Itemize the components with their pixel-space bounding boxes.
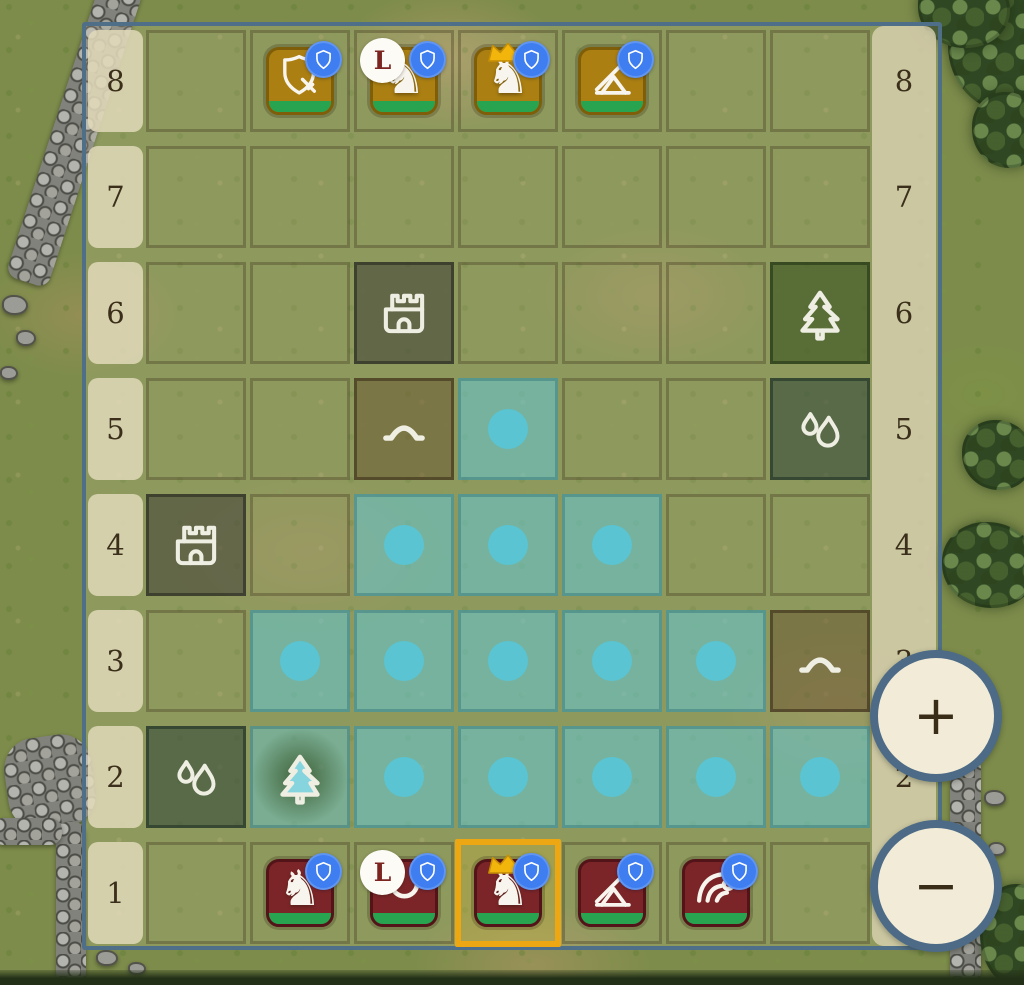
piece-king-gold[interactable]: ♞ <box>474 47 542 115</box>
move-dot <box>384 757 424 797</box>
shield-badge-icon <box>617 41 654 78</box>
move-dot <box>592 525 632 565</box>
board-cell[interactable] <box>562 494 662 596</box>
board-cell[interactable] <box>458 610 558 712</box>
board-cell[interactable] <box>458 378 558 480</box>
shield-badge-icon <box>513 853 550 890</box>
health-bar <box>685 913 747 924</box>
row-label-left: 8 <box>88 30 143 132</box>
health-bar <box>581 913 643 924</box>
board-cell[interactable] <box>354 146 454 248</box>
move-dot <box>488 525 528 565</box>
piece-catapult-red[interactable] <box>578 859 646 927</box>
piece-shield-guard-gold[interactable] <box>266 47 334 115</box>
bush <box>972 92 1024 168</box>
board-cell[interactable] <box>666 610 766 712</box>
board-cell[interactable] <box>146 494 246 596</box>
board-cell[interactable] <box>146 262 246 364</box>
board-cell[interactable] <box>666 262 766 364</box>
move-dot <box>696 757 736 797</box>
game-screen: 8765432187654321♞L♞♞L♞ + − <box>0 0 1024 985</box>
shield-badge-icon <box>409 853 446 890</box>
board-cell[interactable] <box>562 610 662 712</box>
board-cell[interactable] <box>770 494 870 596</box>
board-cell[interactable] <box>666 146 766 248</box>
board-cell[interactable] <box>770 842 870 944</box>
row-label-left: 7 <box>88 146 143 248</box>
row-label-left: 5 <box>88 378 143 480</box>
board-cell[interactable] <box>250 378 350 480</box>
board-cell[interactable] <box>666 378 766 480</box>
board-cell[interactable] <box>250 494 350 596</box>
board-cell[interactable] <box>250 262 350 364</box>
health-bar <box>373 101 435 112</box>
board-cell[interactable] <box>146 30 246 132</box>
board-cell[interactable] <box>354 610 454 712</box>
health-bar <box>477 913 539 924</box>
row-label-left: 2 <box>88 726 143 828</box>
zoom-in-button[interactable]: + <box>870 650 1002 782</box>
move-dot <box>384 525 424 565</box>
shield-badge-icon <box>305 853 342 890</box>
board-cell[interactable] <box>458 494 558 596</box>
board-cell[interactable] <box>458 262 558 364</box>
health-bar <box>477 101 539 112</box>
forest-icon <box>253 729 347 825</box>
board-cell[interactable] <box>562 262 662 364</box>
health-bar <box>581 101 643 112</box>
board-cell[interactable] <box>250 610 350 712</box>
board-cell[interactable] <box>770 378 870 480</box>
board-cell[interactable] <box>770 610 870 712</box>
move-dot <box>488 641 528 681</box>
water-icon <box>149 729 243 825</box>
row-label-left: 4 <box>88 494 143 596</box>
piece-knight-gold[interactable]: ♞L <box>370 47 438 115</box>
bush <box>962 420 1024 490</box>
row-label-right: 7 <box>872 180 936 214</box>
board-cell[interactable] <box>146 378 246 480</box>
board-cell[interactable] <box>250 726 350 828</box>
board-cell[interactable] <box>354 262 454 364</box>
piece-lancer-red[interactable]: L <box>370 859 438 927</box>
rock <box>96 950 118 966</box>
stone-wall <box>0 818 62 845</box>
move-dot <box>488 409 528 449</box>
zoom-out-label: − <box>913 859 958 913</box>
castle-icon <box>149 497 243 593</box>
shield-badge-icon <box>721 853 758 890</box>
board-cell[interactable] <box>146 146 246 248</box>
board-cell[interactable] <box>354 726 454 828</box>
board-cell[interactable] <box>354 378 454 480</box>
board-cell[interactable] <box>562 726 662 828</box>
row-label-left: 1 <box>88 842 143 944</box>
board-cell[interactable] <box>458 146 558 248</box>
move-dot <box>800 757 840 797</box>
row-label-right: 6 <box>872 296 936 330</box>
rock <box>984 790 1006 806</box>
board-cell[interactable] <box>562 378 662 480</box>
health-bar <box>269 913 331 924</box>
board-cell[interactable] <box>666 494 766 596</box>
board-cell[interactable] <box>666 726 766 828</box>
move-dot <box>592 757 632 797</box>
health-bar <box>373 913 435 924</box>
zoom-out-button[interactable]: − <box>870 820 1002 952</box>
forest-icon <box>773 265 867 361</box>
row-labels-right <box>872 26 936 946</box>
board-cell[interactable] <box>146 842 246 944</box>
move-dot <box>384 641 424 681</box>
zoom-in-label: + <box>913 689 958 743</box>
shield-badge-icon <box>513 41 550 78</box>
hill-icon <box>773 613 867 709</box>
board-cell[interactable] <box>354 494 454 596</box>
piece-king-red[interactable]: ♞ <box>474 859 542 927</box>
rock <box>16 330 36 346</box>
board-cell[interactable] <box>770 146 870 248</box>
board-cell[interactable] <box>770 262 870 364</box>
board-cell[interactable] <box>250 146 350 248</box>
hill-icon <box>357 381 451 477</box>
level-badge: L <box>360 38 405 83</box>
shield-badge-icon <box>617 853 654 890</box>
level-badge: L <box>360 850 405 895</box>
board-cell[interactable] <box>146 610 246 712</box>
water-icon <box>773 381 867 477</box>
row-label-left: 3 <box>88 610 143 712</box>
castle-icon <box>357 265 451 361</box>
row-label-right: 8 <box>872 64 936 98</box>
piece-knight-red[interactable]: ♞ <box>266 859 334 927</box>
shield-badge-icon <box>305 41 342 78</box>
treeline <box>0 970 1024 985</box>
bush <box>942 522 1024 608</box>
piece-wave-mage-red[interactable] <box>682 859 750 927</box>
move-dot <box>488 757 528 797</box>
board-cell[interactable] <box>666 30 766 132</box>
board-cell[interactable] <box>562 146 662 248</box>
piece-catapult-gold[interactable] <box>578 47 646 115</box>
board-cell[interactable] <box>146 726 246 828</box>
rock <box>0 366 18 380</box>
move-dot <box>696 641 736 681</box>
row-label-right: 4 <box>872 528 936 562</box>
shield-badge-icon <box>409 41 446 78</box>
board-cell[interactable] <box>770 726 870 828</box>
row-label-left: 6 <box>88 262 143 364</box>
move-dot <box>592 641 632 681</box>
rock <box>2 295 28 315</box>
move-dot <box>280 641 320 681</box>
board-cell[interactable] <box>770 30 870 132</box>
row-label-right: 5 <box>872 412 936 446</box>
health-bar <box>269 101 331 112</box>
board-cell[interactable] <box>458 726 558 828</box>
